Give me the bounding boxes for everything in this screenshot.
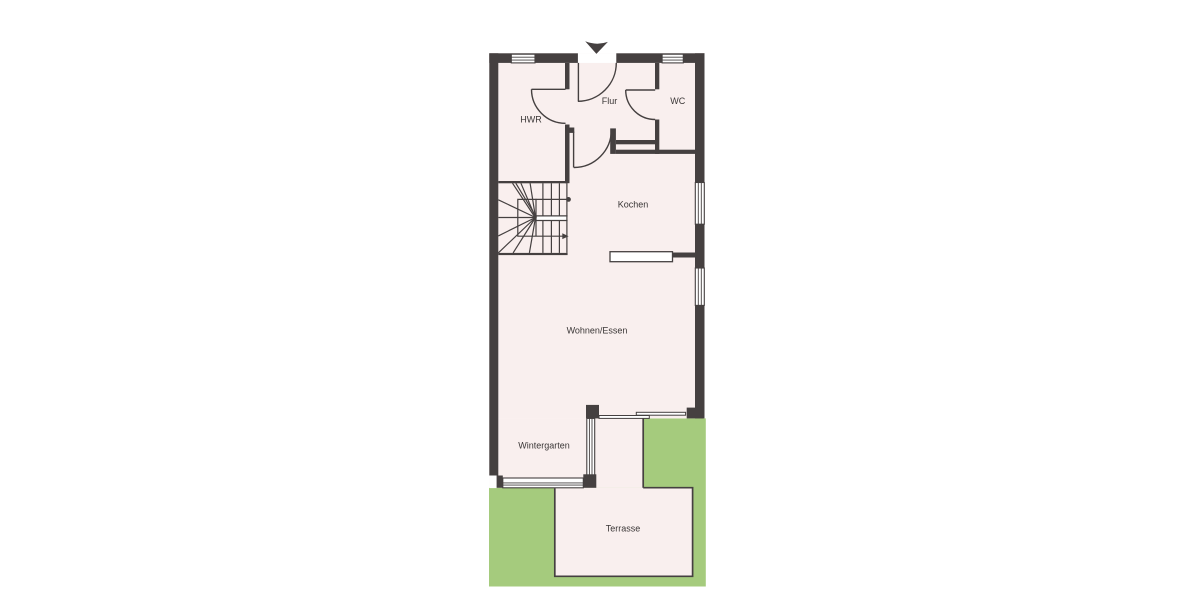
svg-text:WC: WC xyxy=(670,96,685,106)
svg-text:Wohnen/Essen: Wohnen/Essen xyxy=(567,325,628,335)
svg-text:Terrasse: Terrasse xyxy=(606,523,641,533)
svg-text:HWR: HWR xyxy=(520,114,542,124)
svg-text:Flur: Flur xyxy=(602,96,618,106)
svg-text:Kochen: Kochen xyxy=(618,199,649,209)
svg-text:Wintergarten: Wintergarten xyxy=(518,440,570,450)
